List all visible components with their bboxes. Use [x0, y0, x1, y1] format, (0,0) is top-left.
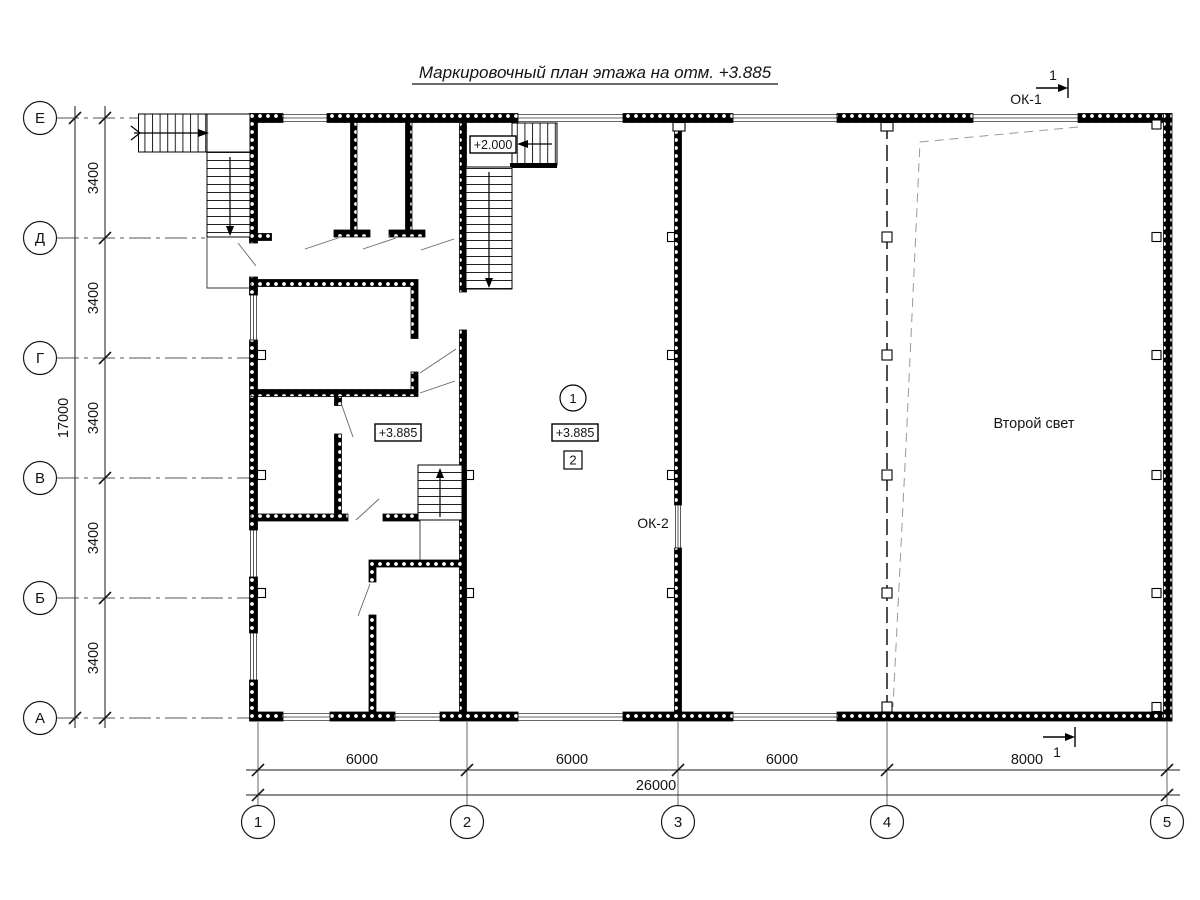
section-mark-top: 1 ОК-1: [1010, 67, 1068, 107]
axis-row-B: Б: [35, 590, 45, 607]
axis-row-A: А: [35, 710, 45, 727]
elevation-3885-hall: +3.885: [556, 426, 595, 440]
elevation-2000-label: +2.000: [474, 138, 513, 152]
main-stairwell: +2.000: [466, 123, 557, 289]
axis-col-2: 2: [463, 814, 471, 831]
plan-annotations: +3.885 +3.885 1 2 ОК-2 Второй свет: [375, 385, 1075, 531]
axis-row-D: Д: [35, 230, 45, 247]
dim-26000: 26000: [636, 778, 676, 794]
section-arrow-bottom: [1065, 733, 1075, 741]
dim-3400-5: 3400: [86, 642, 102, 674]
section-mark-bottom: 1: [1043, 727, 1075, 760]
axis-col-4: 4: [883, 814, 891, 831]
axis-bubble-labels: Е Д Г В Б А 1 2 3 4 5: [35, 110, 1171, 831]
axis-col-5: 5: [1163, 814, 1171, 831]
dim-3400-3: 3400: [86, 402, 102, 434]
external-entry-stair: [131, 114, 250, 288]
window-mark-2-label: ОК-2: [637, 515, 669, 531]
axis-row-E: Е: [35, 110, 45, 127]
hall-node-square-label: 2: [569, 453, 576, 468]
door-leaf-lines: [238, 238, 456, 616]
floor-plan-page: Маркировочный план этажа на отм. +3.885: [0, 0, 1200, 900]
section-number-top: 1: [1049, 67, 1057, 83]
floor-plan-drawing: Маркировочный план этажа на отм. +3.885: [0, 0, 1200, 900]
hall-node-circle-label: 1: [569, 391, 576, 406]
section-arrow-top: [1058, 84, 1068, 92]
dim-6000-1: 6000: [346, 752, 378, 768]
axis-bubbles: [24, 102, 1184, 839]
second-light-label: Второй свет: [993, 416, 1074, 432]
axis-col-3: 3: [674, 814, 682, 831]
axis-col-1: 1: [254, 814, 262, 831]
dim-3400-2: 3400: [86, 282, 102, 314]
window-mark-1-label: ОК-1: [1010, 91, 1042, 107]
axis-row-G: Г: [36, 350, 44, 367]
dim-3400-4: 3400: [86, 522, 102, 554]
axis-row-V: В: [35, 470, 45, 487]
drawing-title: Маркировочный план этажа на отм. +3.885: [412, 63, 778, 84]
dim-8000: 8000: [1011, 752, 1043, 768]
elevation-3885-left: +3.885: [379, 426, 418, 440]
dim-3400-1: 3400: [86, 162, 102, 194]
dim-6000-3: 6000: [766, 752, 798, 768]
page-title: Маркировочный план этажа на отм. +3.885: [419, 63, 772, 82]
dim-17000: 17000: [56, 398, 72, 438]
small-mid-stair: [418, 465, 462, 560]
dim-6000-2: 6000: [556, 752, 588, 768]
section-number-bottom: 1: [1053, 744, 1061, 760]
